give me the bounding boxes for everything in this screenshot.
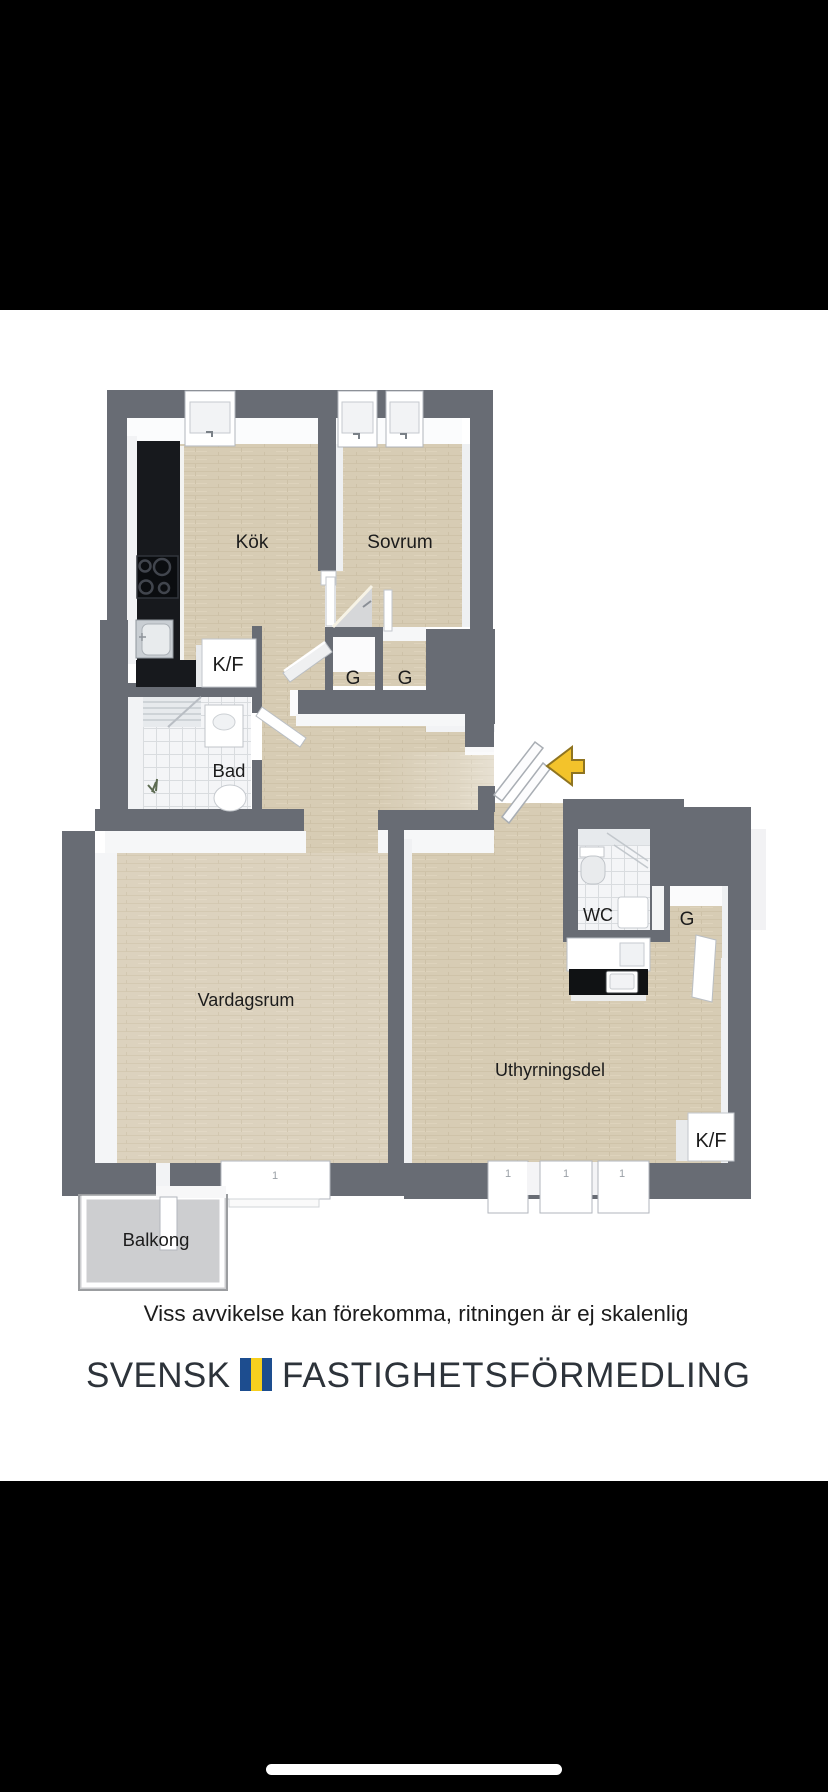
svg-text:WC: WC	[583, 905, 613, 925]
svg-text:Balkong: Balkong	[123, 1229, 190, 1250]
svg-text:Kök: Kök	[236, 532, 269, 553]
svg-text:1: 1	[619, 1168, 625, 1180]
svg-text:SVENSK: SVENSK	[86, 1356, 230, 1395]
svg-text:Uthyrningsdel: Uthyrningsdel	[495, 1060, 605, 1080]
svg-text:G: G	[680, 909, 695, 930]
svg-text:Bad: Bad	[213, 760, 246, 781]
svg-text:G: G	[398, 668, 413, 689]
svg-text:G: G	[346, 668, 361, 689]
svg-text:Sovrum: Sovrum	[367, 532, 432, 553]
svg-text:K/F: K/F	[212, 654, 243, 676]
svg-text:1: 1	[505, 1168, 511, 1180]
svg-text:1: 1	[272, 1170, 278, 1182]
svg-text:1: 1	[563, 1168, 569, 1180]
svg-text:Vardagsrum: Vardagsrum	[198, 990, 295, 1010]
svg-text:K/F: K/F	[695, 1130, 726, 1152]
svg-text:FASTIGHETSFÖRMEDLING: FASTIGHETSFÖRMEDLING	[282, 1356, 750, 1395]
svg-text:Viss avvikelse kan förekomma,: Viss avvikelse kan förekomma, ritningen …	[144, 1301, 689, 1326]
